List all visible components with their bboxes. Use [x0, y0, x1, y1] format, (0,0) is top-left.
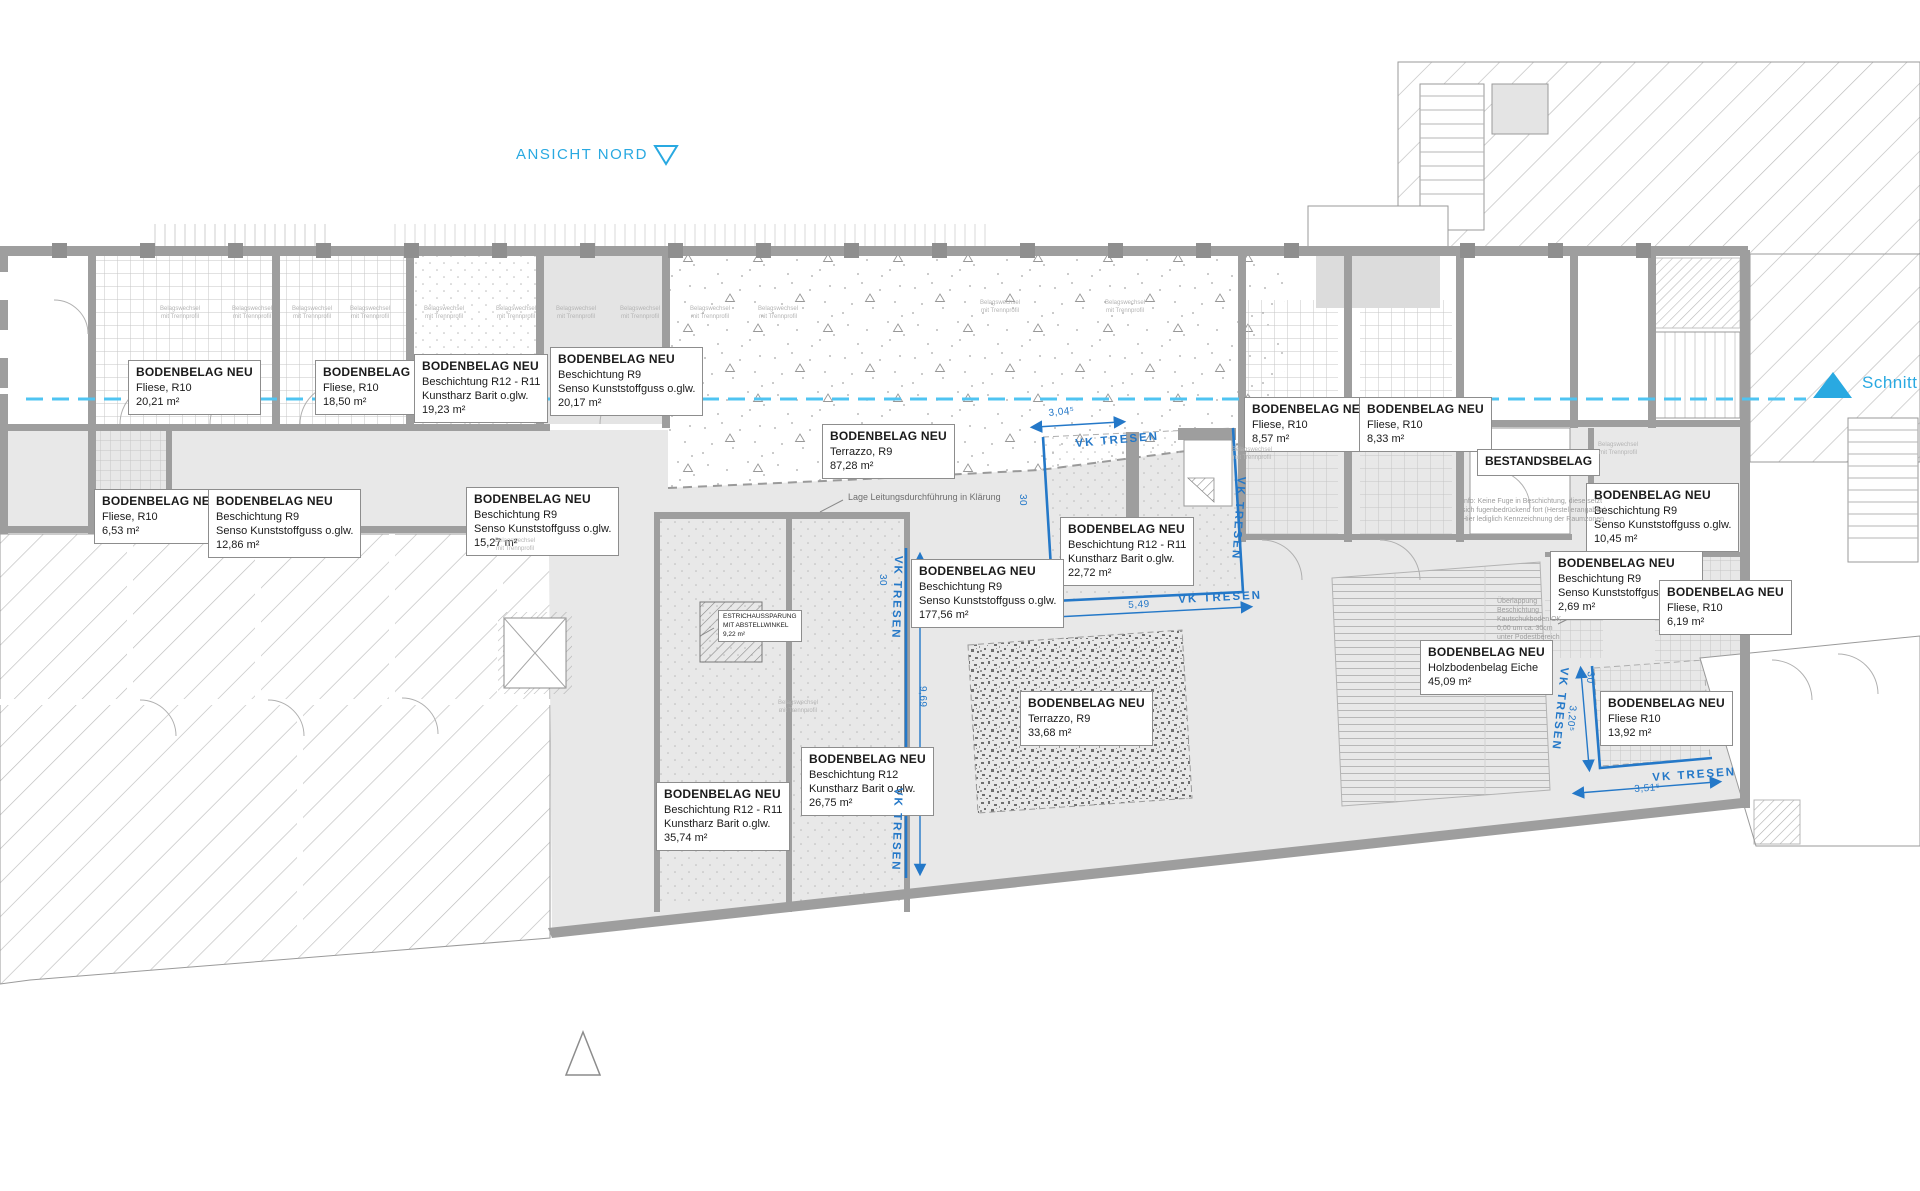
floorplan-drawing	[0, 0, 1920, 1191]
ansicht-nord-triangle	[655, 146, 677, 164]
north-reference-triangle	[566, 1032, 600, 1075]
ansicht-nord-label: ANSICHT NORD	[516, 146, 648, 163]
schnitt-aa-label: Schnitt AA	[1862, 373, 1920, 393]
floorplan-canvas: BODENBELAG NEUFliese, R1020,21 m²BODENBE…	[0, 0, 1920, 1191]
